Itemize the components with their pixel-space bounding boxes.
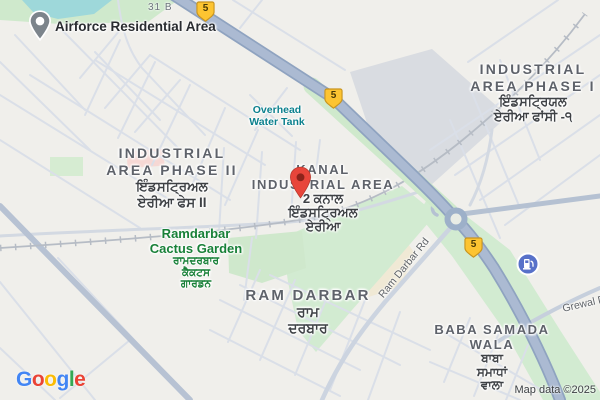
poi-label-ramdarbar-cactus-garden[interactable]: Ramdarbar Cactus Garden ਰਾਮਦਰਬਾਰ ਕੈਕਟਸ ਗ… (150, 227, 242, 291)
poi-label-airforce-residential-area[interactable]: Airforce Residential Area (55, 19, 216, 34)
highway-5-badge: 5 (324, 88, 343, 109)
area-label-industrial-area-phase-1: INDUSTRIAL AREA PHASE I ਇੰਡਸਟ੍ਰਿਯਲ ਏਰੀਆ … (470, 61, 595, 124)
highway-5-badge: 5 (196, 1, 215, 22)
map-attribution: Map data ©2025 (515, 384, 597, 396)
map-canvas[interactable]: 31 B Airforce Residential Area Overhead … (0, 0, 600, 400)
poi-label-overhead-water-tank[interactable]: Overhead Water Tank (249, 105, 304, 128)
area-label-industrial-area-phase-2: INDUSTRIAL AREA PHASE II ਇੰਡਸਟ੍ਰਿਅਲ ਏਰੀਆ… (106, 145, 238, 211)
area-label-kanal-industrial-area: KANAL INDUSTRIAL AREA 2 ਕਨਾਲ ਇੰਡਸਟ੍ਰਿਅਲ … (252, 162, 394, 234)
highway-5-badge: 5 (464, 237, 483, 258)
area-label-baba-samada-wala: BABA SAMADA WALA ਬਾਬਾ ਸਮਾਧਾਂ ਵਾਲਾ (434, 322, 549, 393)
google-logo[interactable]: Google (16, 368, 85, 392)
plot-label-31b: 31 B (148, 2, 173, 13)
destination-pin-icon[interactable] (289, 166, 312, 204)
area-label-ram-darbar: RAM DARBAR ਰਾਮ ਦਰਬਾਰ (245, 287, 370, 336)
fuel-station-icon[interactable] (516, 252, 540, 281)
airforce-area-pin-icon[interactable] (27, 10, 53, 46)
